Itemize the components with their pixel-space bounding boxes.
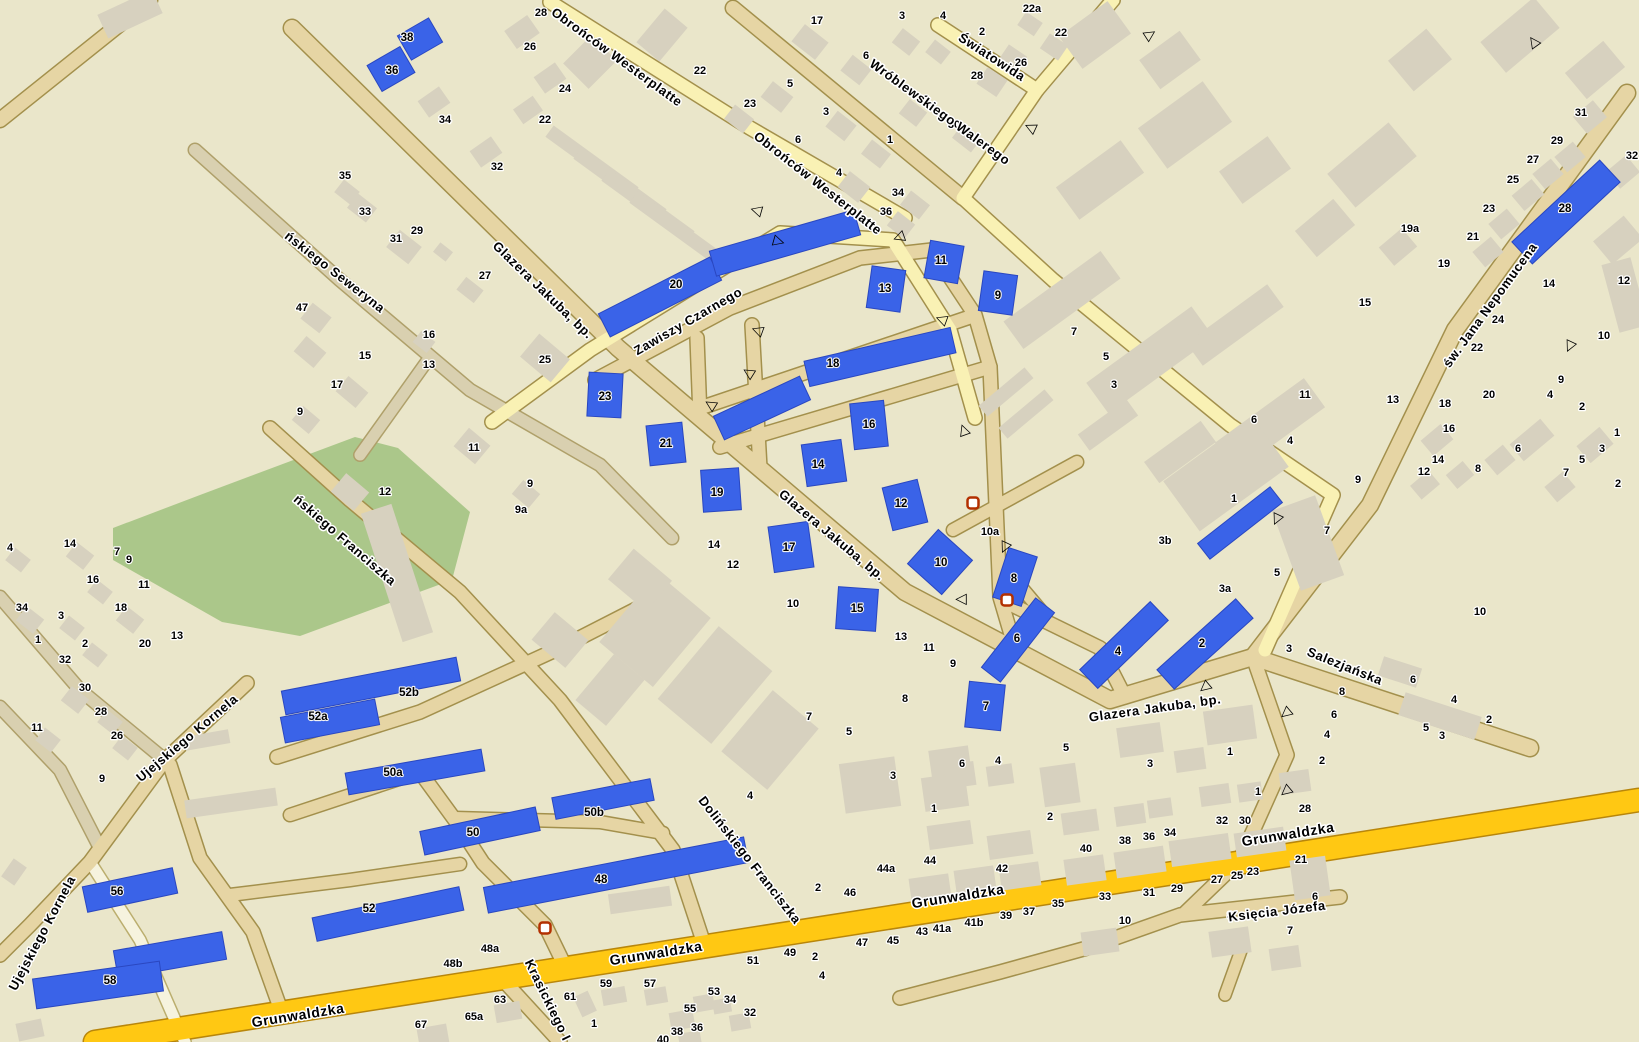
highlighted-building-number: 20 <box>670 279 683 291</box>
highlighted-building-number: 19 <box>711 487 724 499</box>
house-number: 32 <box>1216 815 1228 827</box>
house-number: 9 <box>527 478 533 490</box>
house-number: 57 <box>644 978 656 990</box>
building <box>1116 722 1164 758</box>
house-number: 39 <box>1000 910 1012 922</box>
house-number: 2 <box>1486 714 1492 726</box>
highlighted-building-number: 10 <box>935 557 948 569</box>
highlighted-building-number: 56 <box>111 886 124 898</box>
house-number: 15 <box>359 350 371 362</box>
building <box>1269 945 1302 971</box>
house-number: 36 <box>880 206 892 218</box>
house-number: 32 <box>1626 150 1638 162</box>
house-number: 31 <box>390 233 402 245</box>
house-number: 21 <box>1467 231 1479 243</box>
house-number: 4 <box>1547 389 1554 401</box>
house-number: 22 <box>694 65 706 77</box>
house-number: 7 <box>806 711 812 723</box>
house-number: 34 <box>439 114 452 126</box>
house-number: 9 <box>1558 374 1564 386</box>
house-number: 14 <box>1432 454 1445 466</box>
house-number: 13 <box>171 630 183 642</box>
house-number: 31 <box>1575 107 1587 119</box>
house-number: 48a <box>481 943 500 955</box>
house-number: 2 <box>1579 401 1585 413</box>
house-number: 32 <box>59 654 71 666</box>
house-number: 6 <box>863 50 869 62</box>
house-number: 4 <box>747 790 754 802</box>
house-number: 28 <box>535 7 547 19</box>
poi-marker[interactable] <box>540 923 551 934</box>
house-number: 46 <box>844 887 856 899</box>
building <box>1114 803 1146 827</box>
house-number: 9 <box>126 554 132 566</box>
building <box>1081 928 1120 957</box>
house-number: 34 <box>1164 827 1177 839</box>
house-number: 4 <box>836 167 843 179</box>
highlighted-building-number: 12 <box>895 498 908 510</box>
house-number: 35 <box>1052 898 1064 910</box>
house-number: 13 <box>1387 394 1399 406</box>
house-number: 29 <box>1551 135 1563 147</box>
house-number: 6 <box>1251 414 1257 426</box>
house-number: 2 <box>979 26 985 38</box>
map-canvas[interactable]: ▷▷▷▷▷▷▷▷▷▷▷▷▷▷▷▷▷▷2826242234323533293127… <box>0 0 1639 1042</box>
highlighted-building-number: 23 <box>599 391 612 403</box>
house-number: 65a <box>465 1011 484 1023</box>
road-c1 <box>697 338 700 417</box>
house-number: 44 <box>924 855 937 867</box>
house-number: 3 <box>823 106 829 118</box>
house-number: 5 <box>1579 454 1585 466</box>
house-number: 3 <box>899 10 905 22</box>
highlighted-building-number: 50b <box>584 807 604 819</box>
house-number: 1 <box>35 634 41 646</box>
house-number: 25 <box>1507 174 1519 186</box>
highlighted-building-number: 11 <box>935 255 948 267</box>
house-number: 28 <box>1299 803 1311 815</box>
house-number: 3 <box>1439 730 1445 742</box>
house-number: 5 <box>846 726 852 738</box>
house-number: 22 <box>1471 342 1483 354</box>
house-number: 17 <box>331 379 343 391</box>
building <box>1063 854 1106 885</box>
house-number: 7 <box>1324 525 1330 537</box>
house-number: 20 <box>1483 389 1495 401</box>
house-number: 35 <box>339 170 351 182</box>
house-number: 1 <box>887 134 893 146</box>
house-number: 4 <box>940 10 947 22</box>
house-number: 3 <box>1111 379 1117 391</box>
highlighted-building-number: 2 <box>1199 638 1205 650</box>
house-number: 10 <box>1598 330 1610 342</box>
house-number: 27 <box>1527 154 1539 166</box>
house-number: 3 <box>1147 758 1153 770</box>
house-number: 2 <box>812 951 818 963</box>
house-number: 3b <box>1159 535 1172 547</box>
highlighted-building-number: 50a <box>383 767 403 779</box>
house-number: 10 <box>1474 606 1486 618</box>
highlighted-building-number: 6 <box>1014 633 1020 645</box>
house-number: 18 <box>1439 398 1451 410</box>
house-number: 29 <box>1171 883 1183 895</box>
house-number: 45 <box>887 935 899 947</box>
house-number: 21 <box>1295 854 1307 866</box>
house-number: 2 <box>1319 755 1325 767</box>
house-number: 34 <box>892 187 905 199</box>
highlighted-building-number: 14 <box>812 459 825 471</box>
house-number: 4 <box>7 542 14 554</box>
house-number: 55 <box>684 1003 696 1015</box>
house-number: 9a <box>515 504 528 516</box>
house-number: 6 <box>795 134 801 146</box>
highlighted-building-number: 9 <box>995 290 1001 302</box>
house-number: 1 <box>1614 427 1620 439</box>
house-number: 1 <box>1227 746 1233 758</box>
house-number: 1 <box>931 803 937 815</box>
house-number: 19 <box>1438 258 1450 270</box>
house-number: 23 <box>1483 203 1495 215</box>
house-number: 6 <box>1331 709 1337 721</box>
house-number: 18 <box>115 602 127 614</box>
house-number: 11 <box>923 642 935 654</box>
house-number: 28 <box>971 70 983 82</box>
house-number: 13 <box>423 359 435 371</box>
house-number: 40 <box>1080 843 1092 855</box>
highlighted-building-number: 36 <box>386 65 399 77</box>
house-number: 5 <box>787 78 793 90</box>
house-number: 4 <box>1287 435 1294 447</box>
house-number: 32 <box>491 161 503 173</box>
poi-marker[interactable] <box>968 498 979 509</box>
house-number: 3 <box>890 770 896 782</box>
house-number: 11 <box>468 442 480 454</box>
house-number: 12 <box>727 559 739 571</box>
highlighted-building-number: 52a <box>308 711 328 723</box>
highlighted-building-number: 17 <box>783 542 796 554</box>
house-number: 36 <box>1143 831 1155 843</box>
house-number: 41b <box>965 917 984 929</box>
house-number: 53 <box>708 986 720 998</box>
house-number: 6 <box>1410 674 1416 686</box>
house-number: 24 <box>559 83 572 95</box>
house-number: 20 <box>139 638 151 650</box>
poi-marker[interactable] <box>1002 595 1013 606</box>
highlighted-building-number: 52b <box>399 687 419 699</box>
house-number: 23 <box>744 98 756 110</box>
house-number: 5 <box>1063 742 1069 754</box>
house-number: 12 <box>1618 275 1630 287</box>
house-number: 2 <box>82 638 88 650</box>
house-number: 36 <box>691 1022 703 1034</box>
house-number: 11 <box>138 579 150 591</box>
house-number: 47 <box>296 302 308 314</box>
house-number: 44a <box>877 863 896 875</box>
house-number: 51 <box>747 955 759 967</box>
house-number: 8 <box>1339 686 1345 698</box>
highlighted-building-number: 48 <box>595 874 608 886</box>
house-number: 30 <box>1239 815 1251 827</box>
house-number: 9 <box>99 773 105 785</box>
house-number: 28 <box>95 706 107 718</box>
highlighted-building-number: 38 <box>401 32 414 44</box>
house-number: 43 <box>916 926 928 938</box>
house-number: 33 <box>359 206 371 218</box>
building <box>1174 747 1207 773</box>
house-number: 6 <box>959 758 965 770</box>
house-number: 31 <box>1143 887 1155 899</box>
highlighted-building-number: 18 <box>827 358 840 370</box>
highlighted-building-number: 52 <box>363 903 376 915</box>
house-number: 26 <box>524 41 536 53</box>
house-number: 2 <box>815 882 821 894</box>
house-number: 48b <box>444 958 463 970</box>
building <box>1208 926 1251 957</box>
house-number: 59 <box>600 978 612 990</box>
house-number: 37 <box>1023 906 1035 918</box>
house-number: 34 <box>724 994 737 1006</box>
house-number: 10a <box>981 526 1000 538</box>
map-root: ▷▷▷▷▷▷▷▷▷▷▷▷▷▷▷▷▷▷2826242234323533293127… <box>0 0 1639 1042</box>
house-number: 7 <box>114 546 120 558</box>
house-number: 47 <box>856 937 868 949</box>
house-number: 29 <box>411 225 423 237</box>
house-number: 10 <box>787 598 799 610</box>
house-number: 34 <box>16 602 29 614</box>
house-number: 9 <box>950 658 956 670</box>
highlighted-building-number: 7 <box>983 701 989 713</box>
house-number: 3 <box>1599 443 1605 455</box>
house-number: 42 <box>996 863 1008 875</box>
house-number: 25 <box>539 354 551 366</box>
house-number: 16 <box>87 574 99 586</box>
house-number: 4 <box>819 970 826 982</box>
house-number: 22 <box>1055 27 1067 39</box>
house-number: 30 <box>79 682 91 694</box>
house-number: 3a <box>1219 583 1232 595</box>
house-number: 26 <box>111 730 123 742</box>
highlighted-building-number: 28 <box>1559 203 1572 215</box>
house-number: 13 <box>895 631 907 643</box>
highlighted-building-number: 4 <box>1115 646 1122 658</box>
house-number: 15 <box>1359 297 1371 309</box>
house-number: 1 <box>1255 786 1261 798</box>
house-number: 38 <box>1119 835 1131 847</box>
house-number: 49 <box>784 947 796 959</box>
building <box>1199 783 1231 807</box>
highlighted-building-number: 15 <box>851 603 864 615</box>
building <box>1203 705 1257 746</box>
house-number: 67 <box>415 1019 427 1031</box>
house-number: 27 <box>479 270 491 282</box>
building <box>839 756 901 813</box>
house-number: 14 <box>708 539 721 551</box>
house-number: 12 <box>1418 466 1430 478</box>
house-number: 3 <box>1286 643 1292 655</box>
house-number: 63 <box>494 994 506 1006</box>
house-number: 2 <box>1615 478 1621 490</box>
house-number: 5 <box>1423 722 1429 734</box>
highlighted-building-number: 13 <box>879 283 892 295</box>
house-number: 6 <box>1515 443 1521 455</box>
house-number: 17 <box>811 15 823 27</box>
house-number: 23 <box>1247 866 1259 878</box>
house-number: 27 <box>1211 874 1223 886</box>
house-number: 14 <box>1543 278 1556 290</box>
house-number: 4 <box>1324 729 1331 741</box>
oneway-arrow-icon: ▷ <box>955 592 967 609</box>
house-number: 38 <box>671 1026 683 1038</box>
house-number: 5 <box>1103 351 1109 363</box>
house-number: 19a <box>1401 223 1420 235</box>
house-number: 22 <box>539 114 551 126</box>
house-number: 3 <box>58 610 64 622</box>
highlighted-building-number: 16 <box>863 419 876 431</box>
house-number: 10 <box>1119 915 1131 927</box>
house-number: 40 <box>657 1034 669 1042</box>
house-number: 7 <box>1563 467 1569 479</box>
house-number: 11 <box>31 722 43 734</box>
house-number: 5 <box>1274 567 1280 579</box>
highlighted-building-number: 21 <box>660 438 673 450</box>
house-number: 22a <box>1023 3 1042 15</box>
house-number: 7 <box>1287 925 1293 937</box>
house-number: 16 <box>423 329 435 341</box>
highlighted-building-number: 58 <box>104 975 117 987</box>
house-number: 14 <box>64 538 77 550</box>
house-number: 41a <box>933 923 952 935</box>
house-number: 11 <box>1299 389 1311 401</box>
house-number: 8 <box>902 693 908 705</box>
house-number: 4 <box>995 755 1002 767</box>
house-number: 9 <box>1355 474 1361 486</box>
house-number: 12 <box>379 486 391 498</box>
building <box>1039 763 1080 808</box>
highlighted-building-number: 50 <box>467 827 480 839</box>
house-number: 32 <box>744 1007 756 1019</box>
building <box>1147 797 1173 818</box>
house-number: 8 <box>1475 463 1481 475</box>
house-number: 1 <box>1231 493 1237 505</box>
house-number: 16 <box>1443 423 1455 435</box>
house-number: 2 <box>1047 811 1053 823</box>
house-number: 9 <box>297 406 303 418</box>
house-number: 1 <box>591 1018 597 1030</box>
house-number: 4 <box>1451 694 1458 706</box>
house-number: 33 <box>1099 891 1111 903</box>
house-number: 7 <box>1071 326 1077 338</box>
house-number: 25 <box>1231 870 1243 882</box>
highlighted-building-number: 8 <box>1011 573 1018 585</box>
house-number: 61 <box>564 991 576 1003</box>
house-number: 24 <box>1492 314 1505 326</box>
